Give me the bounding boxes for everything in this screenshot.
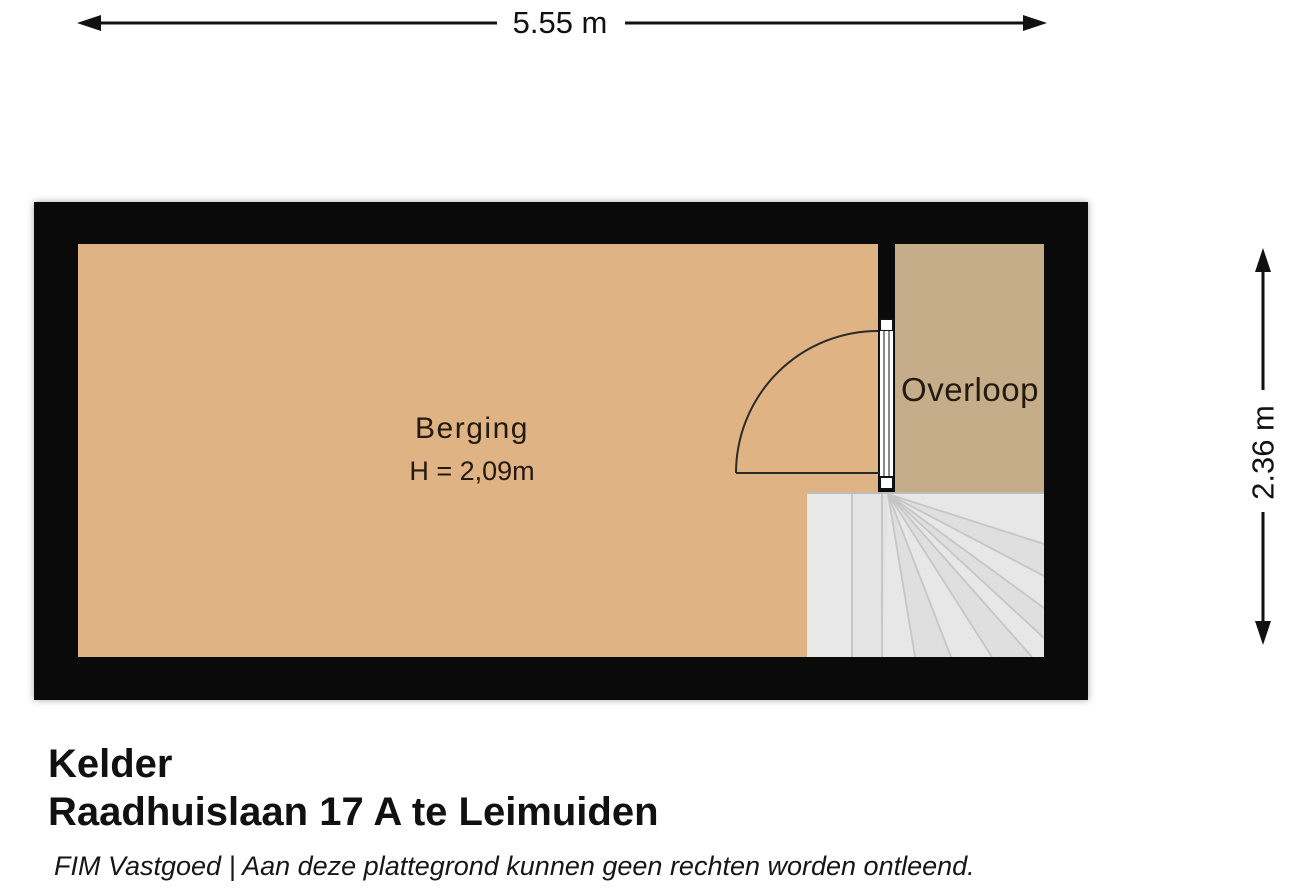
- disclaimer-text: FIM Vastgoed | Aan deze plattegrond kunn…: [54, 851, 975, 882]
- arrowhead-left-icon: [77, 15, 101, 31]
- arrowhead-up-icon: [1255, 248, 1271, 272]
- height-dimension-label: 2.36 m: [1248, 393, 1279, 513]
- room-overloop-label: Overloop: [895, 371, 1045, 409]
- height-dimension-arrow-icon: [1180, 230, 1300, 670]
- address-title: Raadhuislaan 17 A te Leimuiden: [48, 788, 659, 836]
- arrowhead-down-icon: [1255, 621, 1271, 645]
- width-dimension-label: 5.55 m: [490, 5, 630, 41]
- title-block: Kelder Raadhuislaan 17 A te Leimuiden: [48, 740, 659, 836]
- room-berging-ceiling-height-label: H = 2,09m: [372, 456, 572, 487]
- room-berging-label: Berging: [372, 412, 572, 446]
- door-swing-icon: [34, 202, 1088, 700]
- floor-title: Kelder: [48, 740, 659, 788]
- floorplan-canvas: Berging H = 2,09m Overloop: [34, 202, 1088, 700]
- arrowhead-right-icon: [1023, 15, 1047, 31]
